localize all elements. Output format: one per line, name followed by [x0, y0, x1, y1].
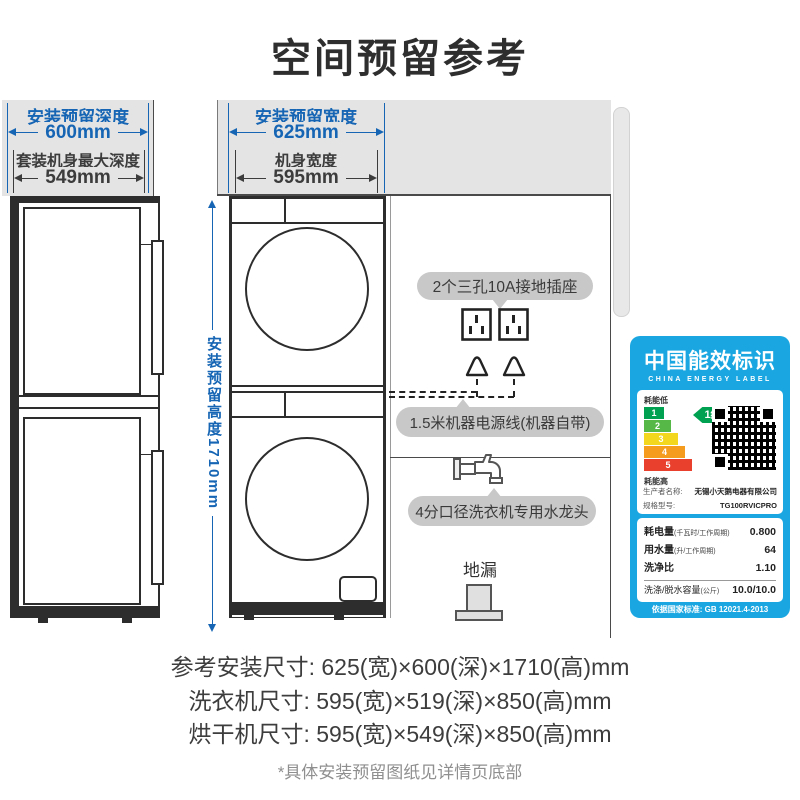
model-value: TG100RVICPRO	[720, 501, 777, 510]
reserve-depth-value: 600mm	[38, 122, 118, 143]
power-cord-callout-label: 1.5米机器电源线(机器自带)	[410, 412, 591, 433]
right-wall-line	[610, 194, 611, 638]
floor-drain-icon	[455, 610, 503, 621]
washer-side-door	[23, 417, 141, 605]
power-plug-icon	[464, 354, 490, 377]
energy-label-title-en: CHINA ENERGY LABEL	[630, 376, 790, 383]
washer-control-panel	[232, 393, 383, 418]
qr-code	[712, 406, 776, 470]
energy-label-title-cn: 中国能效标识	[630, 345, 790, 375]
reserve-height-label: 安装预留高度1710mm	[203, 330, 224, 516]
machine-base	[10, 606, 158, 618]
qr-finder	[712, 454, 728, 470]
grade-bar-5: 5	[644, 459, 692, 471]
install-size-text: 参考安装尺寸: 625(宽)×600(深)×1710(高)mm	[0, 648, 800, 682]
water-tap-callout-bubble: 4分口径洗衣机专用水龙头	[408, 496, 596, 526]
stacked-unit-side-view	[10, 196, 160, 618]
grade-bar-3: 3	[644, 433, 678, 445]
metric-label: 用水量	[644, 545, 674, 556]
dryer-side-door	[23, 207, 141, 395]
washer-drum-door	[245, 437, 369, 561]
metric-row: 洗净比 1.10	[644, 559, 776, 577]
body-depth-value: 549mm	[38, 167, 118, 188]
metric-value: 10.0/10.0	[732, 584, 776, 596]
reserve-width-value: 625mm	[266, 122, 346, 143]
machine-foot	[334, 615, 344, 620]
metric-row: 耗电量(千瓦时/工作周期) 0.800	[644, 523, 776, 541]
washer-size-text: 洗衣机尺寸: 595(宽)×519(深)×850(高)mm	[0, 682, 800, 716]
washer-filter-door	[339, 576, 377, 602]
power-plug-icon	[501, 354, 527, 377]
machine-foot	[122, 618, 132, 623]
model-label: 规格型号:	[643, 500, 675, 511]
unit-separator-line	[19, 407, 158, 409]
qr-finder	[760, 406, 776, 422]
left-wall	[10, 196, 19, 618]
metric-divider	[644, 580, 776, 581]
energy-grade-pyramid: 1 2 3 4 5	[644, 407, 692, 472]
water-tap-icon	[452, 447, 508, 491]
washer-front	[232, 391, 383, 617]
metric-label: 耗电量	[644, 527, 674, 538]
qr-finder	[712, 406, 728, 422]
producer-label: 生产者名称:	[643, 486, 683, 497]
water-tap-callout-label: 4分口径洗衣机专用水龙头	[415, 501, 588, 522]
grade-bar-2: 2	[644, 420, 671, 432]
metric-row: 用水量(升/工作周期) 64	[644, 541, 776, 559]
grade-bar-1: 1	[644, 407, 664, 419]
power-socket-icon	[498, 308, 529, 341]
machine-foot	[244, 615, 254, 620]
stacked-unit-front-view	[229, 196, 386, 618]
socket-callout-bubble: 2个三孔10A接地插座	[417, 272, 593, 300]
dryer-front	[232, 199, 383, 387]
power-cord-line	[513, 379, 515, 397]
washer-door-handle	[151, 450, 164, 585]
producer-value: 无锡小天鹅电器有限公司	[695, 486, 778, 497]
metric-row: 洗涤/脱水容量(公斤) 10.0/10.0	[644, 583, 776, 601]
energy-grade-panel: 耗能低 1 2 3 4 5 1级 耗能高 生产者名称: 无锡小天鹅电器有限公司 …	[637, 390, 783, 514]
power-cord-line	[389, 396, 514, 398]
metric-unit: (千瓦时/工作周期)	[674, 530, 730, 537]
machine-base	[229, 602, 386, 615]
metric-value: 64	[764, 544, 776, 556]
grade-bar-4: 4	[644, 446, 685, 458]
energy-standard-label: 依据国家标准: GB 12021.4-2013	[630, 604, 790, 615]
right-wall-column	[613, 107, 630, 317]
page-title: 空间预留参考	[0, 26, 800, 84]
energy-low-label: 耗能低	[644, 395, 668, 406]
unit-separator-line	[19, 395, 158, 397]
metric-label: 洗涤/脱水容量	[644, 585, 701, 595]
dryer-control-panel	[232, 199, 383, 224]
floor-drain-label: 地漏	[440, 556, 520, 581]
metric-unit: (升/工作周期)	[674, 548, 716, 555]
niche-line	[390, 196, 391, 618]
socket-callout-label: 2个三孔10A接地插座	[433, 275, 578, 297]
body-width-value: 595mm	[266, 167, 346, 188]
dryer-size-text: 烘干机尺寸: 595(宽)×549(深)×850(高)mm	[0, 715, 800, 749]
control-panel-divider	[284, 393, 286, 416]
metric-unit: (公斤)	[701, 588, 720, 595]
machine-foot	[38, 618, 48, 623]
dryer-door-handle	[151, 240, 164, 375]
energy-metrics-panel: 耗电量(千瓦时/工作周期) 0.800 用水量(升/工作周期) 64 洗净比 1…	[637, 518, 783, 602]
dryer-drum-door	[245, 227, 369, 351]
metric-label: 洗净比	[644, 563, 674, 574]
power-socket-icon	[461, 308, 492, 341]
space-reservation-infographic: 空间预留参考 安装预留深度 600mm 套装机身最大深度 549mm 安装预留宽…	[0, 0, 800, 800]
metric-value: 0.800	[750, 526, 776, 538]
footnote-text: *具体安装预留图纸见详情页底部	[0, 758, 800, 783]
power-cord-line	[389, 391, 477, 393]
power-cord-line	[476, 379, 478, 397]
power-cord-callout-bubble: 1.5米机器电源线(机器自带)	[396, 407, 604, 437]
top-panel	[10, 196, 158, 203]
china-energy-label: 中国能效标识 CHINA ENERGY LABEL 耗能低 1 2 3 4 5 …	[630, 336, 790, 618]
control-panel-divider	[284, 199, 286, 222]
metric-value: 1.10	[756, 562, 776, 574]
